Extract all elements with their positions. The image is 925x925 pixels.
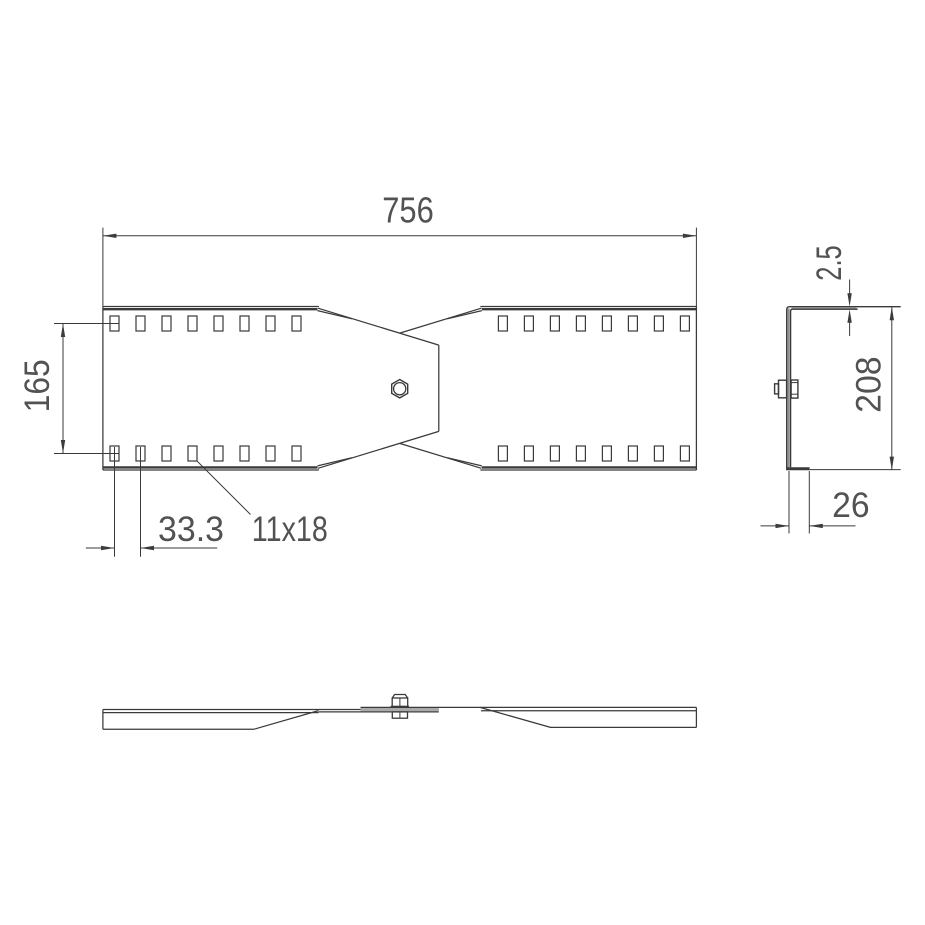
svg-text:26: 26 [832,485,870,525]
svg-text:2.5: 2.5 [809,245,849,281]
svg-text:756: 756 [382,190,434,231]
svg-text:33.3: 33.3 [158,509,224,549]
svg-text:165: 165 [17,359,57,412]
svg-text:11x18: 11x18 [252,509,328,549]
svg-text:208: 208 [849,356,889,413]
